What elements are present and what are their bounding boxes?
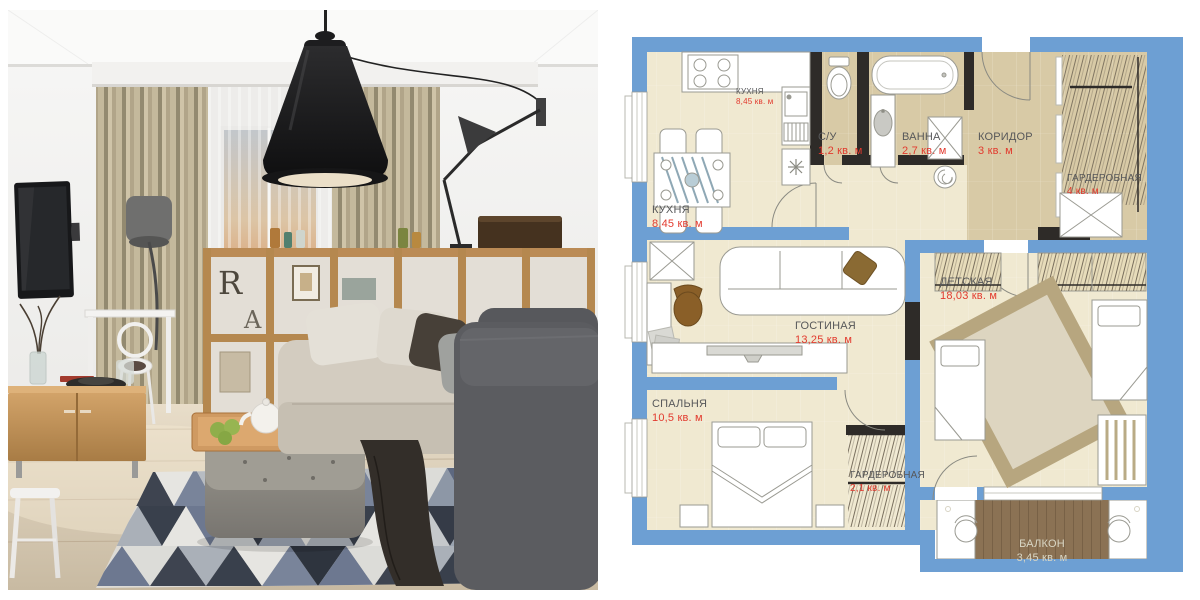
desk-chair (674, 285, 702, 326)
floor-plan: КУХНЯ 8,45 кв. м КУХНЯ 8,45 кв. м С/У 1,… (624, 37, 1187, 574)
window-kids-balcony (984, 487, 1102, 500)
door-gap-kids (984, 240, 1028, 253)
green-apple (218, 431, 232, 445)
nightstand (680, 505, 708, 527)
decor-letter-r: R (218, 264, 243, 302)
facade-windows (625, 92, 647, 497)
interior-photo-svg: R A (8, 10, 598, 590)
office-chair (955, 520, 977, 542)
lamp-glow (278, 173, 372, 187)
decor-letter-a: A (243, 306, 262, 334)
glassware (342, 278, 376, 300)
box-decor (220, 352, 250, 392)
bottle-small (412, 232, 421, 248)
pillow-light (304, 301, 385, 367)
interior-photo: R A (8, 10, 598, 590)
tv (707, 346, 802, 355)
office-chair (1108, 520, 1130, 542)
bottle-green (398, 228, 408, 248)
pillow (764, 427, 806, 447)
bottle-glass (296, 230, 305, 248)
sofa (720, 247, 905, 315)
snowflake-icon (788, 159, 804, 175)
stove (688, 55, 738, 89)
pillow (718, 427, 760, 447)
bottle-amber (270, 228, 280, 248)
bath-sink (874, 110, 892, 136)
floor-plan-svg (624, 37, 1187, 574)
bottle-teal (284, 232, 292, 248)
glass-vase (30, 352, 46, 384)
door-gap-balcony (935, 487, 977, 500)
radiator (1098, 415, 1146, 485)
balcony-deck (937, 500, 1147, 559)
screenshot: R A (0, 0, 1200, 600)
wc-furniture (827, 57, 851, 99)
toilet (827, 67, 851, 99)
sofa-dark (454, 308, 598, 590)
nightstand (816, 505, 844, 527)
washer-drum (934, 166, 956, 188)
